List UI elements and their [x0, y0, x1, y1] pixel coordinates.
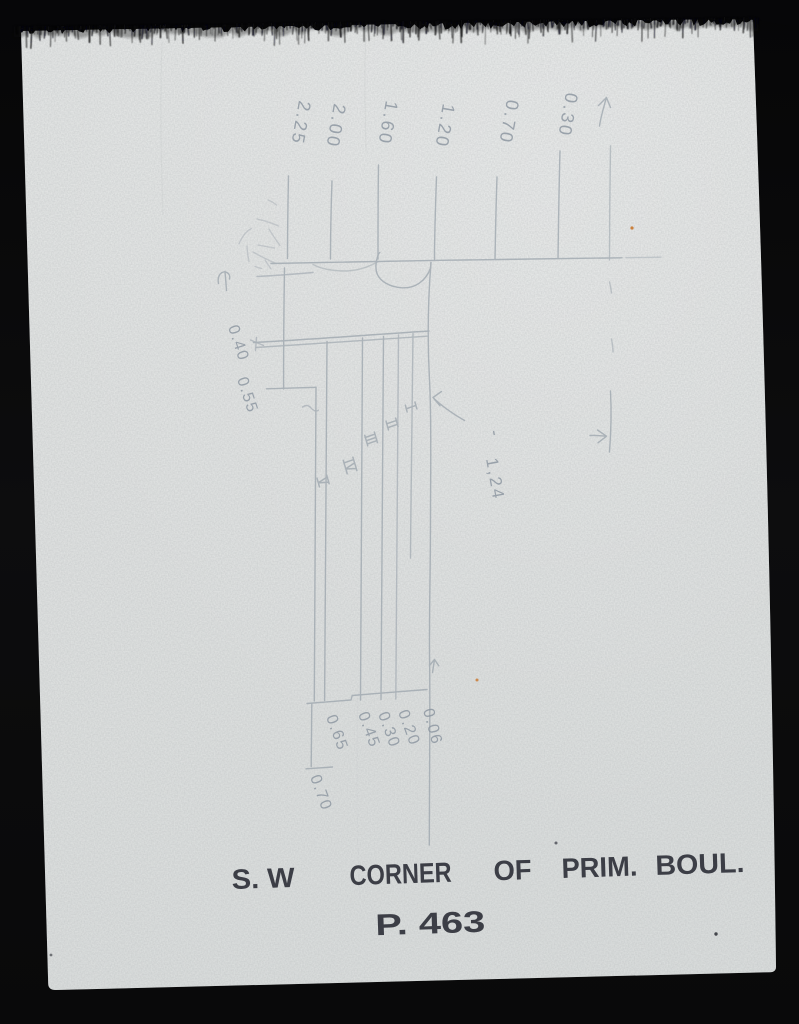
svg-text:CORNER: CORNER [349, 857, 452, 891]
svg-text:PRIM.: PRIM. [561, 851, 638, 885]
svg-text:OF: OF [493, 854, 532, 886]
svg-text:BOUL.: BOUL. [655, 847, 745, 881]
svg-text:S. W: S. W [231, 862, 296, 895]
svg-text:P. 463: P. 463 [375, 906, 486, 943]
